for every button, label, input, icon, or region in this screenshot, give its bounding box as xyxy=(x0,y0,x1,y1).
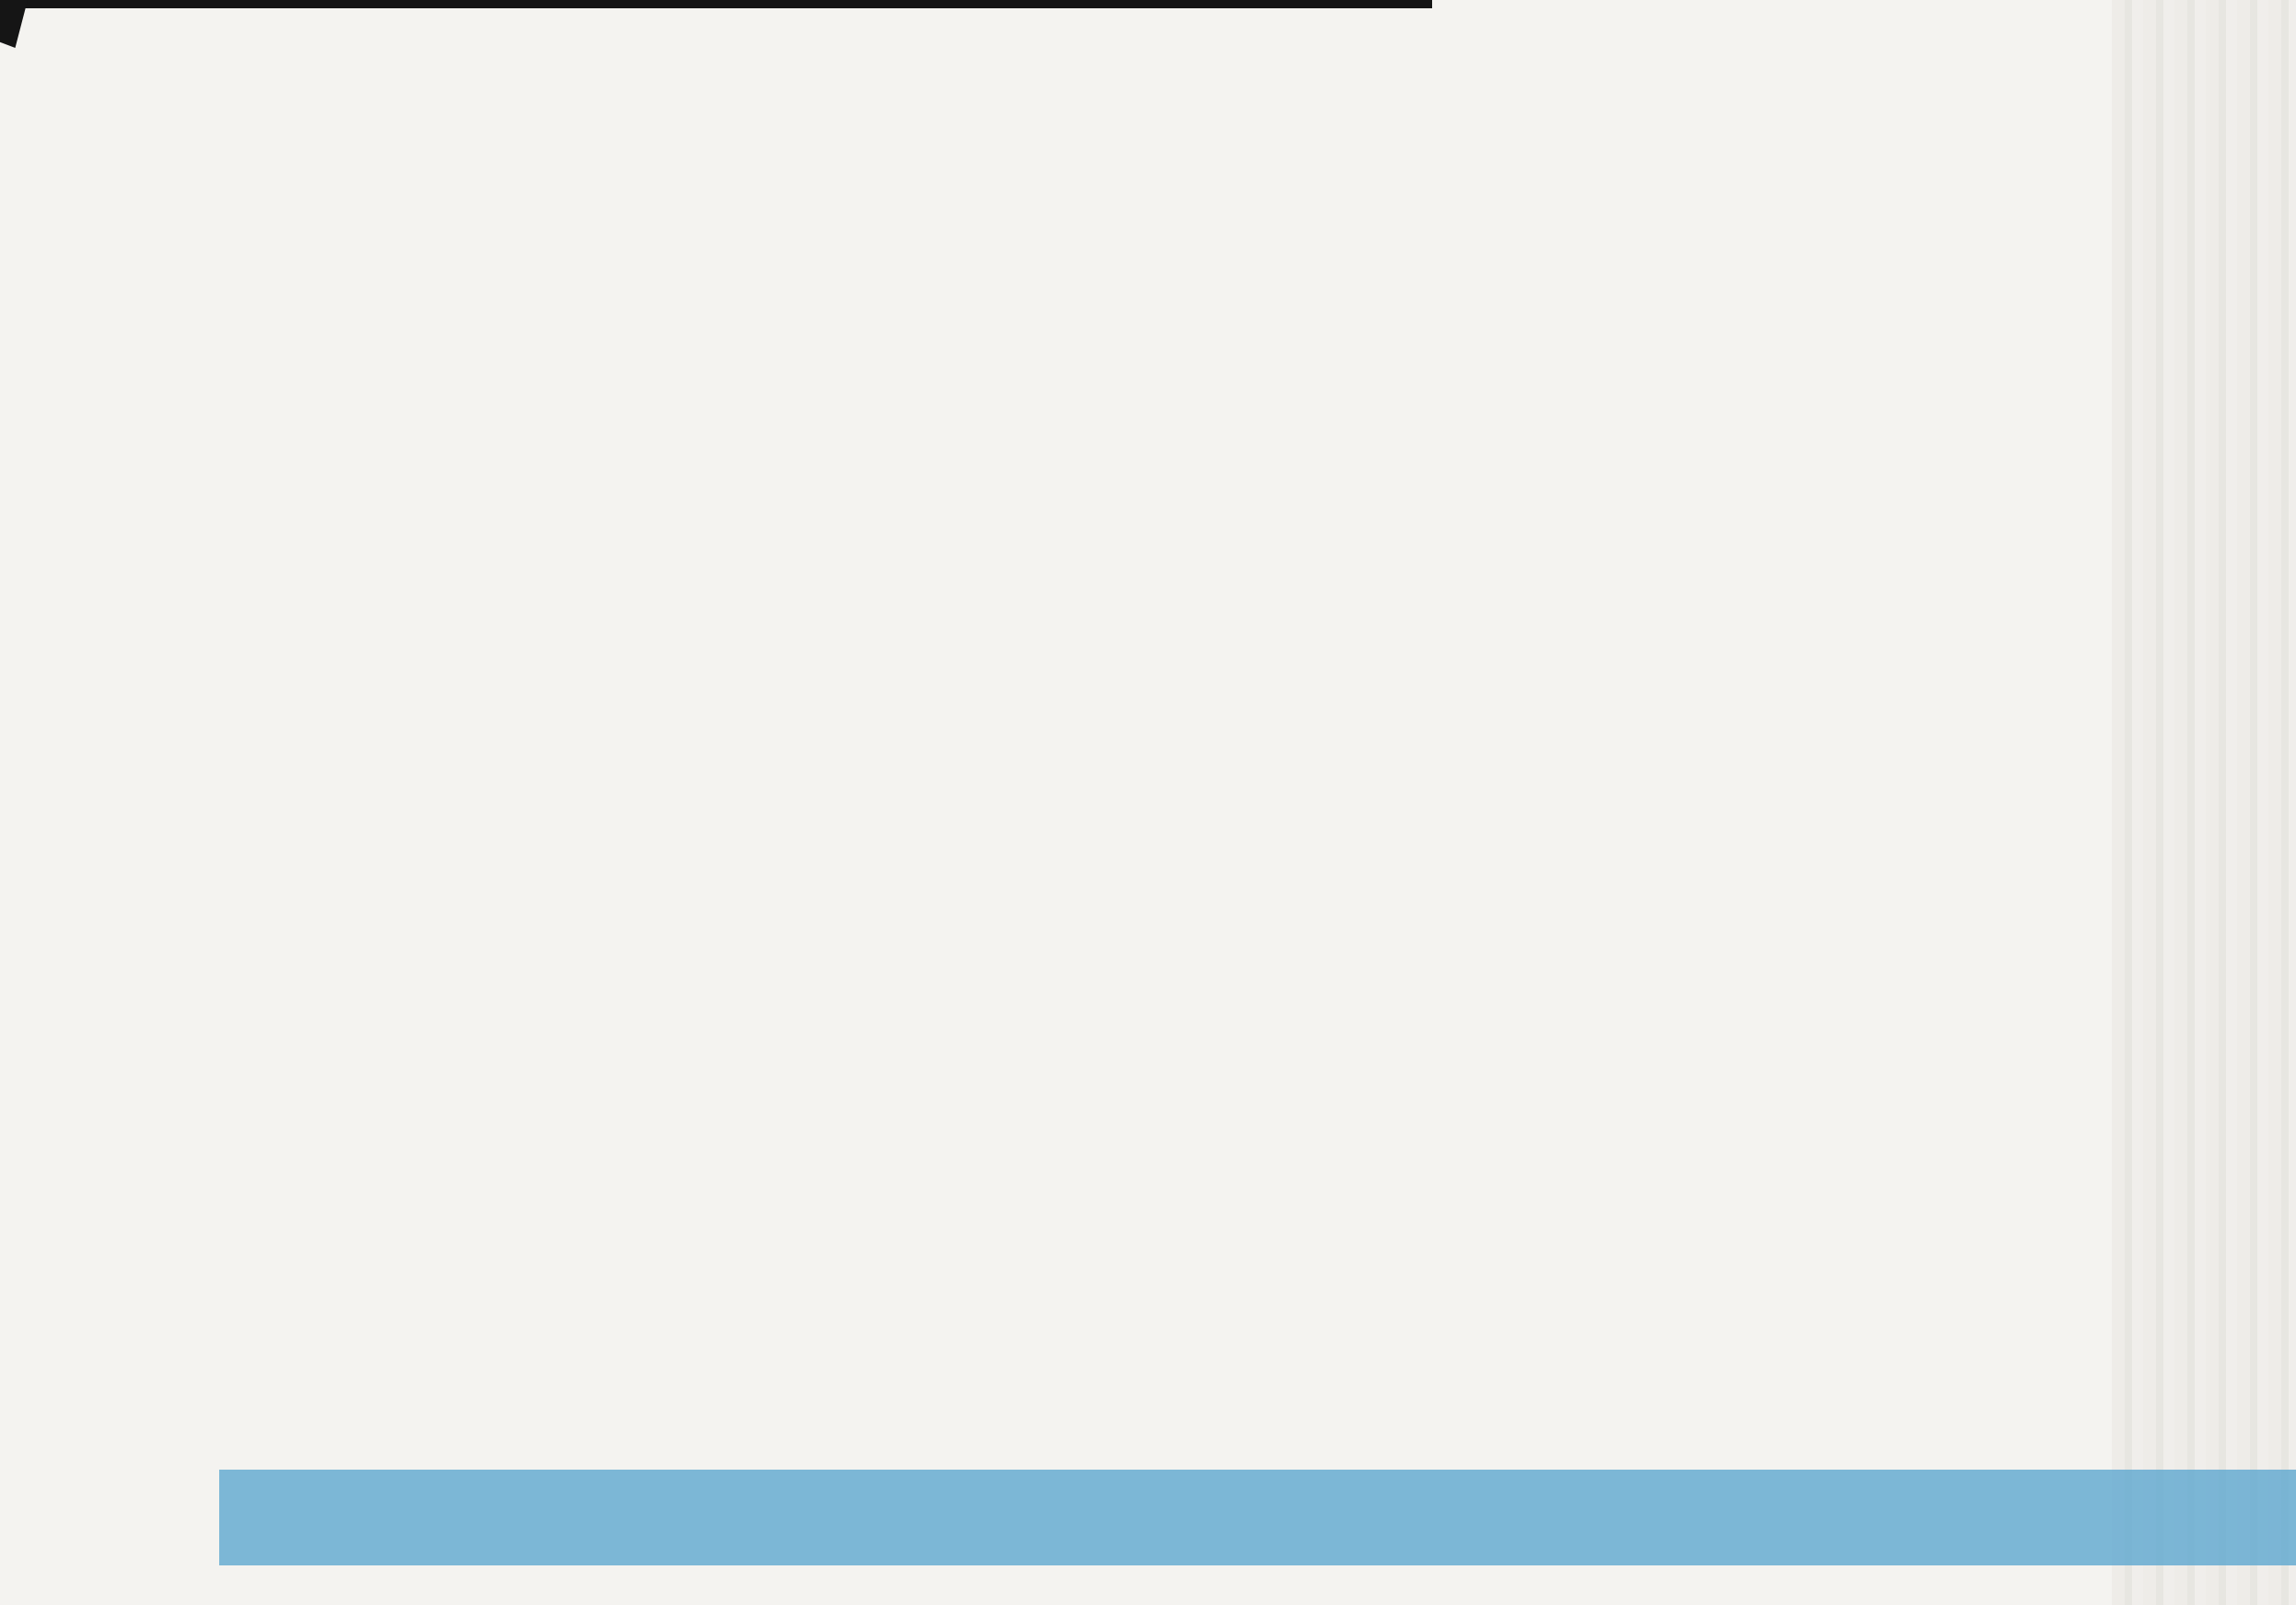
footer xyxy=(1524,1543,1584,1560)
scan-top-edge xyxy=(0,0,1432,8)
instruction-sheet xyxy=(0,0,2296,1605)
watermark-sun-logo xyxy=(0,1169,663,1605)
